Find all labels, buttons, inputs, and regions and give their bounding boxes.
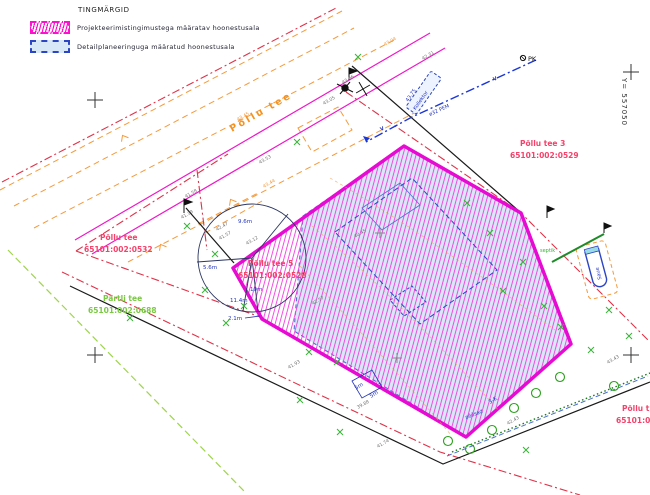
legend-item-label: Projekteerimistingimustega määratav hoon… bbox=[77, 24, 260, 32]
legend-title: TINGMÄRGID bbox=[78, 6, 330, 14]
pk-point: PK bbox=[520, 55, 537, 63]
parcel-label-pollu-t-edge: Põllu t 65101:00 bbox=[616, 404, 650, 425]
site-plan-canvas: TINGMÄRGID Projekteerimistingimustega mä… bbox=[0, 0, 650, 495]
dimension-label: 5m bbox=[369, 390, 380, 400]
legend-item-label: Detailplaneeringuga määratud hoonestusal… bbox=[77, 43, 235, 51]
road-name-label: Põllu tee bbox=[228, 90, 294, 135]
legend: TINGMÄRGID Projekteerimistingimustega mä… bbox=[30, 6, 330, 59]
parcel-label-pollu-tee-3: Põllu tee 3 65101:002:0529 bbox=[510, 139, 579, 160]
parcel-name: Pärtli tee bbox=[103, 294, 142, 303]
elevation-label: 41.58 bbox=[184, 188, 198, 200]
elevation-label: 42.43 bbox=[506, 415, 520, 427]
parcel-name: Põllu tee 3 bbox=[520, 139, 565, 148]
elevation-label: 41.93 bbox=[287, 359, 301, 371]
parcel-code: 65101:002:0529 bbox=[510, 151, 579, 160]
parcel-code: 65101:002:0528 bbox=[238, 271, 307, 280]
parcel-name: Põllu tee 5 bbox=[248, 259, 293, 268]
y-coordinate-label: Y= 557050 bbox=[620, 77, 628, 126]
parcel-name: Põllu t bbox=[622, 404, 650, 413]
site-plan-drawing: Y= 557050 bbox=[0, 0, 650, 495]
pipe-spec-label: ø32 PEM bbox=[428, 103, 450, 118]
dimension-label: 9.6m bbox=[238, 219, 252, 225]
parcel-label-partli-tee: Pärtli tee 65101:002:0688 bbox=[88, 294, 157, 315]
elevation-label: 41.74 bbox=[376, 438, 390, 450]
elevation-label: 39.88 bbox=[356, 399, 370, 411]
parcel-code: 65101:002:0688 bbox=[88, 306, 157, 315]
green-boundary-line bbox=[8, 250, 245, 492]
elevation-label: 41.39 bbox=[180, 209, 194, 221]
elevation-label: 41.57 bbox=[218, 230, 232, 242]
magenta-hatch-swatch bbox=[30, 21, 70, 34]
parcel-code: 65101:00 bbox=[616, 416, 650, 425]
blue-dashed-swatch bbox=[30, 40, 70, 53]
elevation-label: 43.12 bbox=[245, 235, 259, 247]
elevation-label: 43.05 bbox=[322, 95, 336, 107]
parcel-name: Põllu tee bbox=[100, 233, 138, 242]
dimension-label: 2.1m bbox=[228, 316, 242, 322]
dimension-tick bbox=[245, 316, 260, 318]
water-line-v-label-2: V bbox=[379, 126, 385, 133]
water-line bbox=[363, 60, 536, 142]
elevation-label: 42.31 bbox=[421, 50, 435, 62]
parcel-label-pollu-tee: Põllu tee 65101:002:0532 bbox=[84, 233, 153, 254]
dimension-label: 11.4m bbox=[230, 298, 248, 304]
elevation-label: 43.43 bbox=[606, 354, 620, 366]
legend-item-projekteerimistingimused: Projekteerimistingimustega määratav hoon… bbox=[30, 21, 330, 34]
legend-item-detailplaneering: Detailplaneeringuga määratud hoonestusal… bbox=[30, 40, 330, 53]
septic-label: septik bbox=[540, 248, 555, 254]
dimension-label: 5.6m bbox=[203, 265, 217, 271]
dimension-label: 10m bbox=[250, 287, 262, 293]
elevation-label: 43.04 bbox=[383, 36, 397, 48]
projekteerimistingimused-hoonestusala bbox=[233, 146, 571, 437]
pk-label: PK bbox=[528, 55, 537, 63]
water-line-v-label: V bbox=[492, 76, 498, 83]
dimension-label: 5m bbox=[354, 382, 365, 392]
elevation-label: 43.44 bbox=[262, 178, 276, 190]
elevation-label: 42.47 bbox=[215, 221, 229, 233]
parcel-code: 65101:002:0532 bbox=[84, 245, 153, 254]
well-tank-symbol: Saue bbox=[576, 240, 619, 300]
